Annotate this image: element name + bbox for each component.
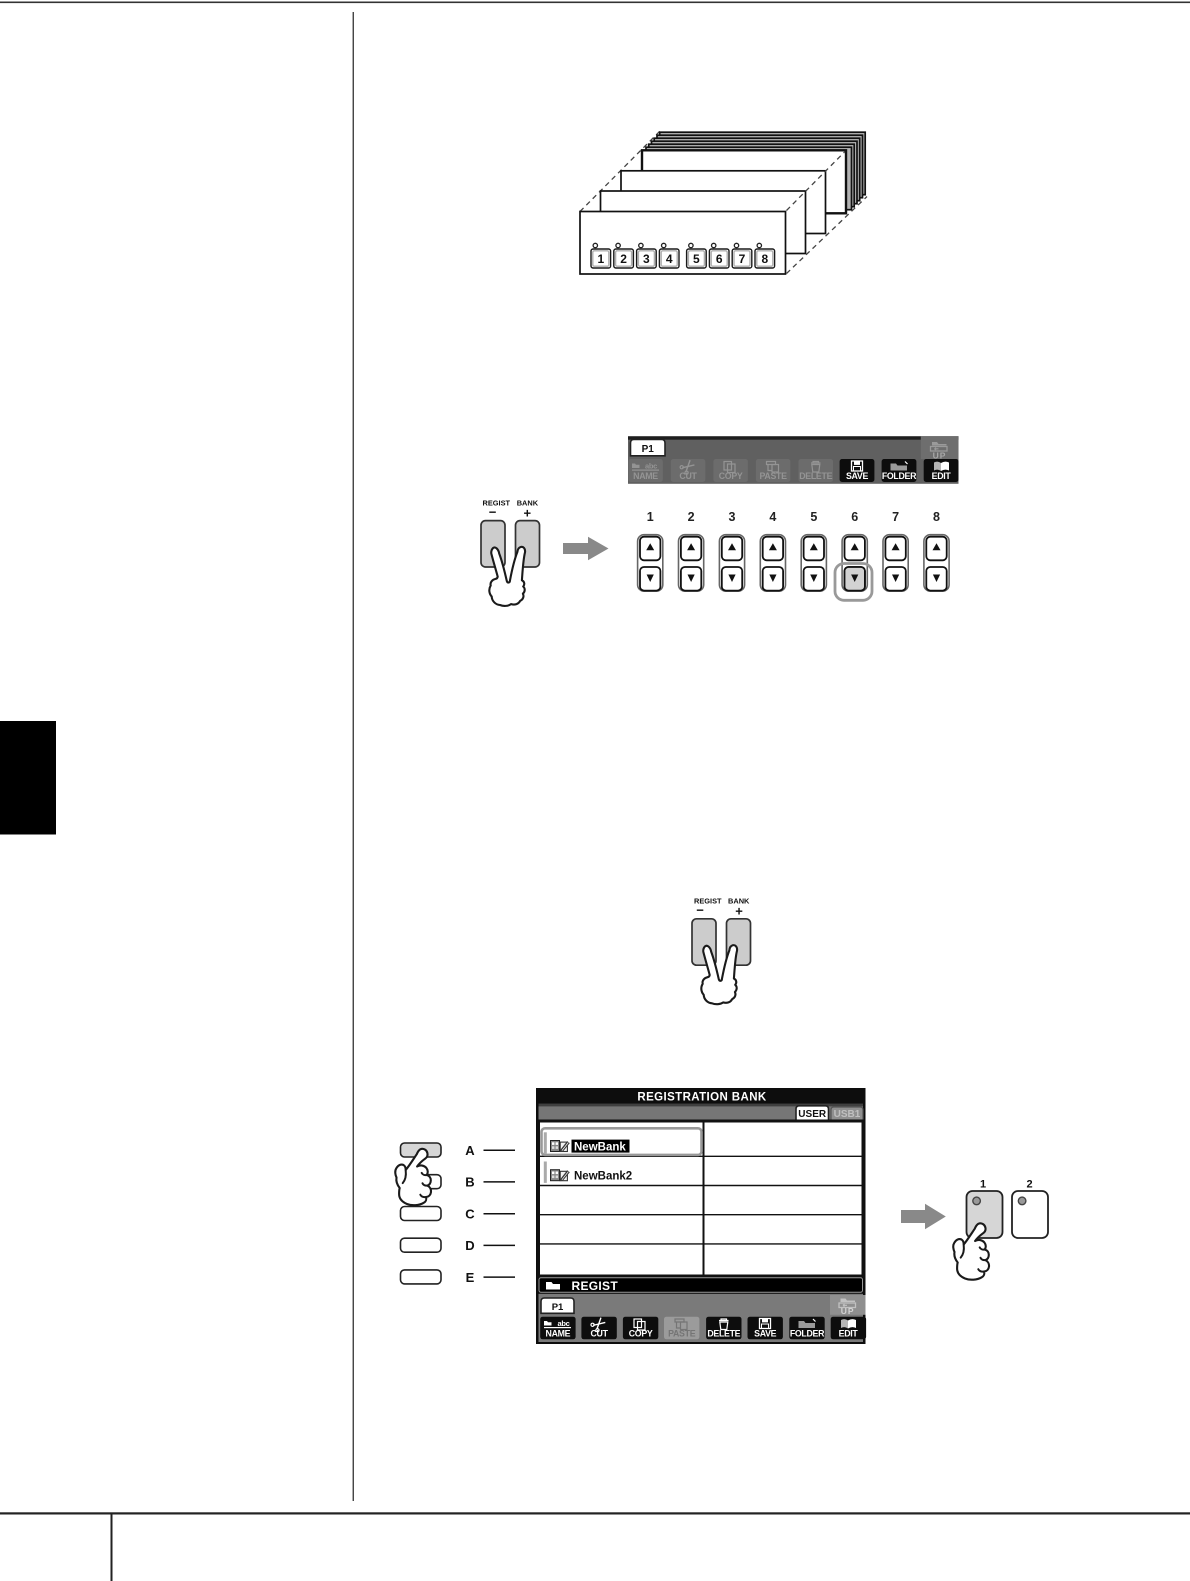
svg-text:D: D — [465, 1238, 474, 1253]
svg-text:REGIST: REGIST — [572, 1279, 619, 1293]
svg-text:EDIT: EDIT — [839, 1329, 859, 1339]
svg-text:B: B — [465, 1175, 474, 1190]
svg-text:2: 2 — [620, 252, 627, 266]
svg-text:+: + — [524, 506, 532, 521]
svg-text:C: C — [465, 1207, 475, 1222]
svg-text:FOLDER: FOLDER — [882, 471, 917, 481]
svg-text:USER: USER — [798, 1109, 827, 1120]
svg-text:P1: P1 — [642, 444, 655, 455]
svg-text:SAVE: SAVE — [846, 471, 869, 481]
svg-text:8: 8 — [761, 252, 768, 266]
svg-text:E: E — [466, 1270, 475, 1285]
svg-text:A: A — [465, 1143, 475, 1158]
svg-text:1: 1 — [597, 252, 604, 266]
svg-text:8: 8 — [933, 510, 940, 524]
svg-text:EDIT: EDIT — [932, 471, 952, 481]
svg-text:NAME: NAME — [546, 1329, 571, 1339]
svg-text:5: 5 — [693, 252, 700, 266]
svg-text:+: + — [735, 904, 743, 919]
svg-text:NewBank2: NewBank2 — [574, 1171, 632, 1183]
svg-text:NAME: NAME — [633, 471, 658, 481]
svg-text:2: 2 — [688, 510, 695, 524]
svg-text:3: 3 — [729, 510, 736, 524]
svg-text:REGIST: REGIST — [483, 499, 511, 508]
svg-text:SAVE: SAVE — [754, 1329, 777, 1339]
svg-text:−: − — [489, 505, 497, 520]
svg-text:4: 4 — [666, 252, 673, 266]
svg-text:REGISTRATION BANK: REGISTRATION BANK — [637, 1092, 767, 1104]
svg-text:6: 6 — [716, 252, 723, 266]
svg-text:2: 2 — [1026, 1179, 1032, 1191]
svg-text:UP: UP — [841, 1306, 855, 1316]
svg-text:FOLDER: FOLDER — [790, 1329, 825, 1339]
svg-text:3: 3 — [643, 252, 650, 266]
svg-text:6: 6 — [851, 510, 858, 524]
svg-text:7: 7 — [892, 510, 899, 524]
svg-text:5: 5 — [810, 510, 817, 524]
svg-text:NewBank: NewBank — [574, 1141, 626, 1153]
svg-text:USB1: USB1 — [834, 1109, 861, 1120]
svg-text:abc: abc — [645, 462, 657, 471]
svg-text:abc: abc — [557, 1319, 569, 1328]
svg-text:1: 1 — [980, 1179, 986, 1191]
svg-text:1: 1 — [647, 510, 654, 524]
svg-text:7: 7 — [739, 252, 746, 266]
svg-text:−: − — [696, 903, 704, 918]
svg-text:4: 4 — [769, 510, 776, 524]
svg-text:P1: P1 — [552, 1302, 564, 1313]
